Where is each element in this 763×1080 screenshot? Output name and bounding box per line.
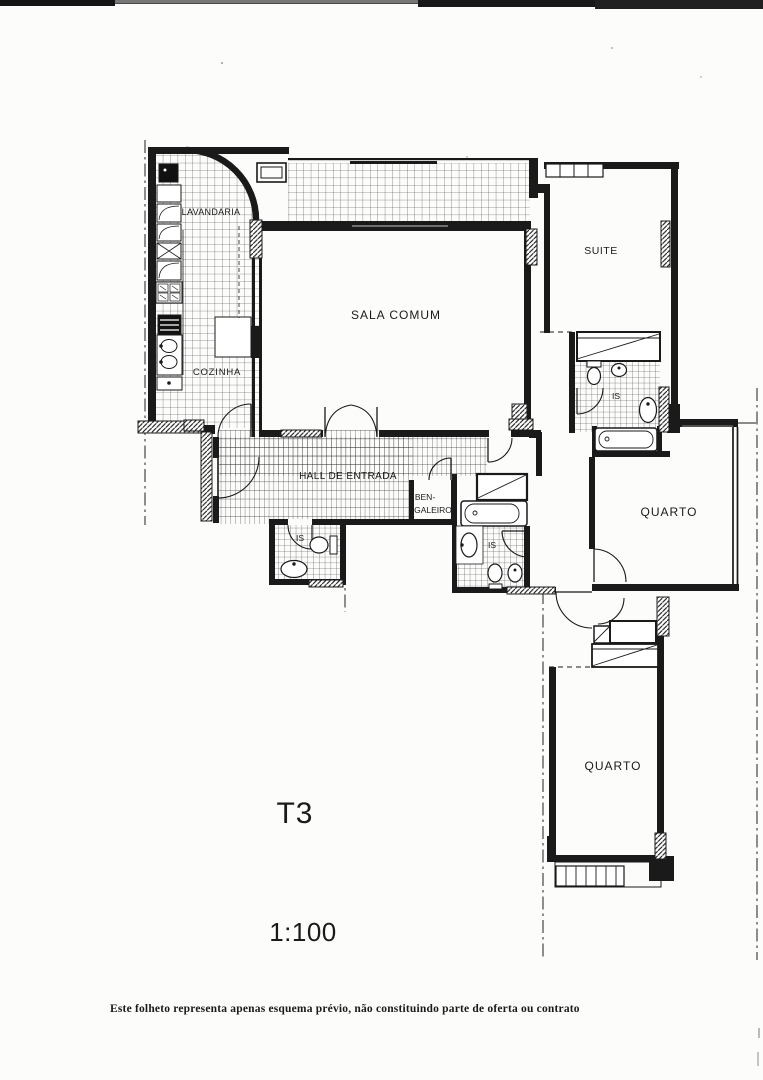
room-label-lavandaria: LAVANDARIA [182,207,241,217]
hob-icon [156,282,182,303]
cabinet-box [157,377,182,390]
sink-corredor [461,533,477,557]
closet-small-quarto-inferior [594,626,610,643]
bidet-corredor [508,564,522,582]
room-label-bengaleiro-1: BEN- [415,492,435,502]
bathtub-corredor [461,501,527,526]
toilet-suite [587,361,601,385]
kitchen-counter-island [215,317,251,357]
room-label-is-corredor: IS [488,540,496,550]
plan-scale-label: 1:100 [269,917,337,947]
floor-varanda [288,163,530,222]
door-gap-is-hall [288,519,312,525]
shelf-quarto-inferior [610,621,656,643]
toilet-corredor [488,564,502,589]
cross-box-icon [157,243,181,259]
sink-suite [640,398,657,423]
floor-plan-drawing: LAVANDARIA COZINHA SALA COMUM SUITE HALL… [0,0,763,1080]
sink-hall [281,561,307,578]
appliances-column [156,164,182,390]
washer-icon [157,224,181,241]
toilet-hall [310,536,337,554]
room-label-is-suite: IS [612,391,620,401]
room-label-suite: SUITE [584,245,617,257]
footer-disclaimer: Este folheto representa apenas esquema p… [110,1003,580,1015]
washer-icon [157,261,181,280]
kitchen-sink [157,335,182,375]
room-label-quarto-inferior: QUARTO [585,759,642,773]
room-label-sala-comum: SALA COMUM [351,308,441,322]
window-suite [546,164,603,177]
room-label-quarto-direito: QUARTO [641,505,698,519]
room-label-bengaleiro-2: GALEIRO [414,505,452,515]
wardrobe-quarto-inferior [592,644,658,667]
bidet-suite [612,364,627,377]
scanned-floor-plan-page: LAVANDARIA COZINHA SALA COMUM SUITE HALL… [0,0,763,1080]
room-label-hall-entrada: HALL DE ENTRADA [299,471,397,482]
plan-type-label: T3 [276,797,313,830]
room-label-cozinha: COZINHA [193,367,241,378]
room-label-is-hall: IS [296,533,304,543]
bathtub-suite [595,428,657,451]
varanda-rail [288,158,536,160]
washer-icon [157,204,181,222]
wardrobe-suite [577,332,660,361]
closet-corredor [477,474,527,500]
appliance-dark [159,164,178,182]
